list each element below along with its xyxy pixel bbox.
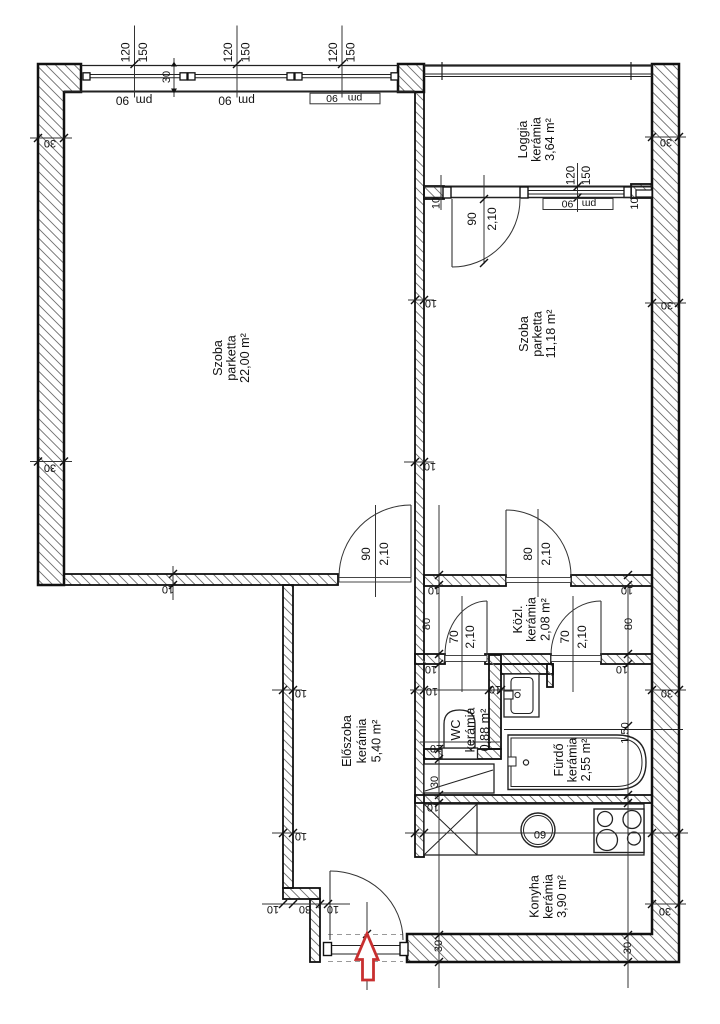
svg-text:0,88 m²: 0,88 m² [478,709,492,752]
svg-text:30: 30 [433,940,445,952]
svg-text:30: 30 [661,299,673,311]
svg-text:1,50: 1,50 [620,722,632,743]
svg-text:pm: pm [136,93,153,107]
svg-text:pm: pm [581,197,596,209]
svg-text:10: 10 [428,584,440,596]
svg-text:2,10: 2,10 [377,542,391,566]
svg-text:150: 150 [136,42,150,62]
svg-text:10: 10 [431,197,443,209]
svg-text:80: 80 [623,618,635,630]
svg-text:30: 30 [661,687,673,699]
svg-text:kerámia: kerámia [355,719,369,764]
svg-text:2,55 m²: 2,55 m² [579,739,593,782]
svg-text:30: 30 [44,462,56,474]
svg-text:kerámia: kerámia [541,874,555,919]
svg-text:80: 80 [421,618,433,630]
svg-text:2,10: 2,10 [575,625,589,649]
svg-text:22,00 m²: 22,00 m² [238,333,252,383]
svg-text:90: 90 [116,93,130,107]
svg-text:10: 10 [426,685,438,697]
svg-text:10: 10 [162,583,174,595]
svg-text:Loggia: Loggia [516,121,530,159]
svg-text:150: 150 [239,42,253,62]
svg-text:10: 10 [425,663,437,675]
svg-text:2,10: 2,10 [485,207,499,231]
svg-text:90: 90 [218,93,232,107]
svg-text:90: 90 [326,92,338,104]
svg-text:parketta: parketta [531,311,545,357]
svg-text:150: 150 [344,42,358,62]
svg-text:10: 10 [267,903,279,915]
svg-text:kerámia: kerámia [566,738,580,783]
svg-text:90: 90 [359,547,373,561]
svg-text:parketta: parketta [225,335,239,381]
svg-text:80: 80 [521,547,535,561]
svg-text:30: 30 [44,137,56,149]
svg-text:10: 10 [295,830,307,842]
svg-text:70: 70 [447,630,461,644]
svg-text:120: 120 [119,42,133,62]
svg-text:Fürdő: Fürdő [552,744,566,777]
svg-text:pm: pm [347,92,362,104]
svg-text:Konyha: Konyha [528,875,542,918]
svg-text:10: 10 [424,460,436,472]
svg-text:10: 10 [616,663,628,675]
svg-text:150: 150 [581,166,593,185]
svg-text:3,90 m²: 3,90 m² [555,875,569,918]
svg-text:2,10: 2,10 [463,625,477,649]
svg-text:120: 120 [221,42,235,62]
svg-text:Előszoba: Előszoba [340,715,354,767]
svg-text:90: 90 [562,197,574,209]
svg-text:120: 120 [326,42,340,62]
svg-text:70: 70 [558,630,572,644]
svg-text:kerámia: kerámia [530,117,544,162]
svg-text:Szoba: Szoba [211,340,225,376]
svg-text:30: 30 [622,942,634,954]
svg-text:90: 90 [465,212,479,226]
svg-text:120: 120 [566,166,578,185]
svg-text:30: 30 [429,776,441,788]
svg-text:11,18 m²: 11,18 m² [544,310,558,359]
svg-text:30: 30 [161,71,173,83]
svg-text:2,10: 2,10 [539,542,553,566]
svg-text:kerámia: kerámia [463,708,477,753]
svg-text:10: 10 [629,197,641,209]
svg-text:pm: pm [238,93,255,107]
svg-text:10: 10 [427,801,439,813]
svg-text:10: 10 [327,903,339,915]
svg-text:30: 30 [299,903,311,915]
svg-text:10: 10 [295,687,307,699]
svg-text:30: 30 [660,136,672,148]
svg-text:60: 60 [534,828,546,840]
svg-text:30: 30 [659,905,671,917]
svg-text:Közl.: Közl. [511,606,525,634]
svg-text:Szoba: Szoba [517,316,531,352]
svg-text:10: 10 [425,297,437,309]
svg-text:10: 10 [489,683,501,695]
svg-text:3,64 m²: 3,64 m² [543,118,557,161]
svg-text:5,40 m²: 5,40 m² [369,720,383,763]
svg-text:2,08 m²: 2,08 m² [538,598,552,641]
svg-text:10: 10 [430,742,442,754]
svg-text:WC: WC [449,720,463,741]
svg-text:kerámia: kerámia [525,597,539,642]
svg-text:10: 10 [621,584,633,596]
